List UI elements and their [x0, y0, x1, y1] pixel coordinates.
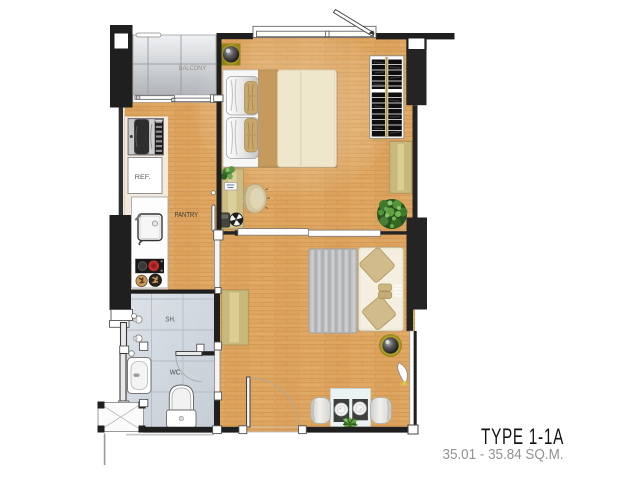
svg-text:BALCONY: BALCONY [179, 65, 207, 72]
svg-text:PANTRY: PANTRY [175, 210, 199, 219]
svg-text:REF.: REF. [135, 174, 151, 181]
svg-text:WC.: WC. [170, 368, 183, 377]
svg-text:35.01 - 35.84 SQ.M.: 35.01 - 35.84 SQ.M. [443, 446, 564, 463]
svg-text:SH.: SH. [165, 317, 175, 324]
